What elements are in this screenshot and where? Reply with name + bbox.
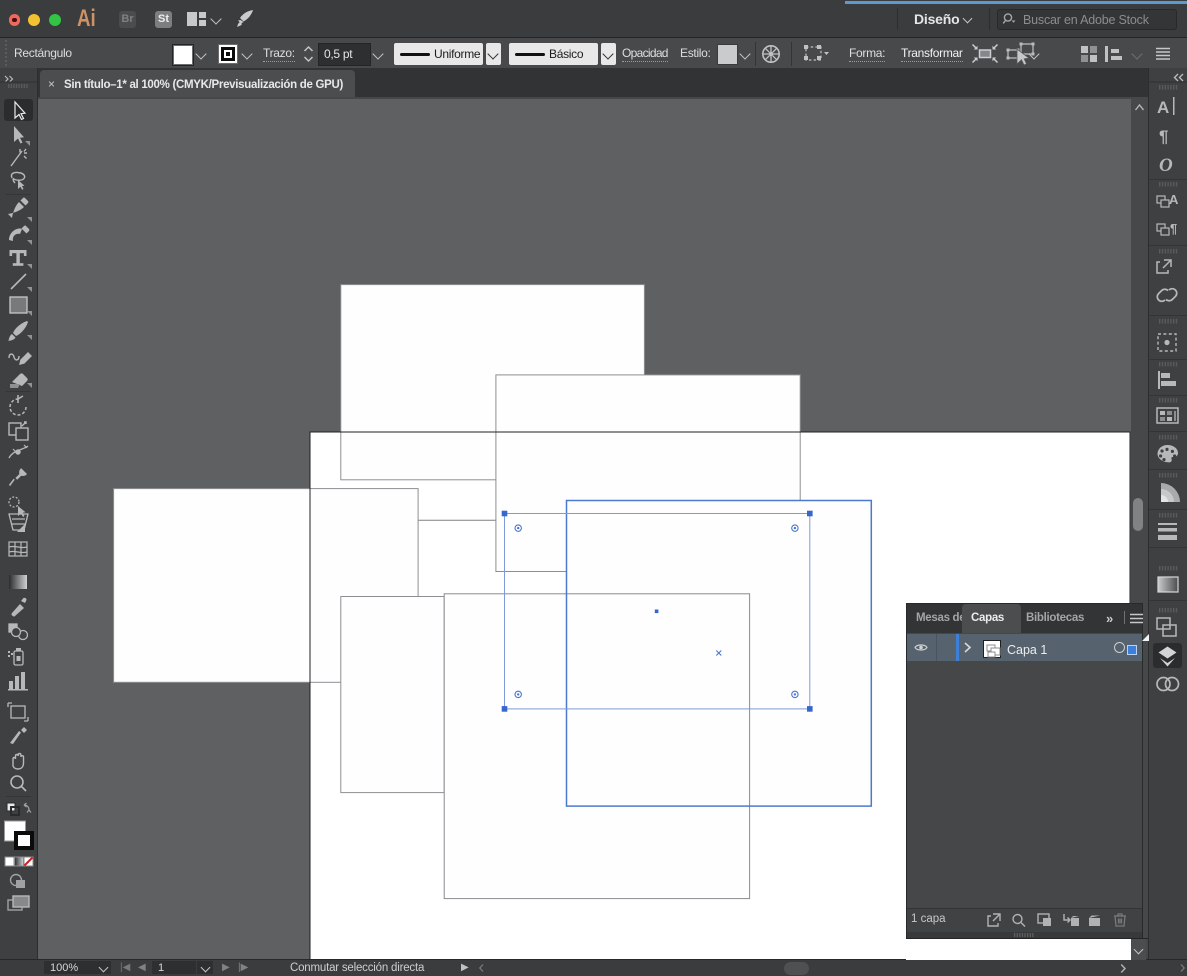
svg-text:A: A xyxy=(1157,98,1169,117)
svg-text:O: O xyxy=(1159,155,1173,176)
svg-text:¶: ¶ xyxy=(1159,127,1168,146)
svg-text:A: A xyxy=(1169,192,1179,207)
svg-text:¶: ¶ xyxy=(1170,221,1177,236)
